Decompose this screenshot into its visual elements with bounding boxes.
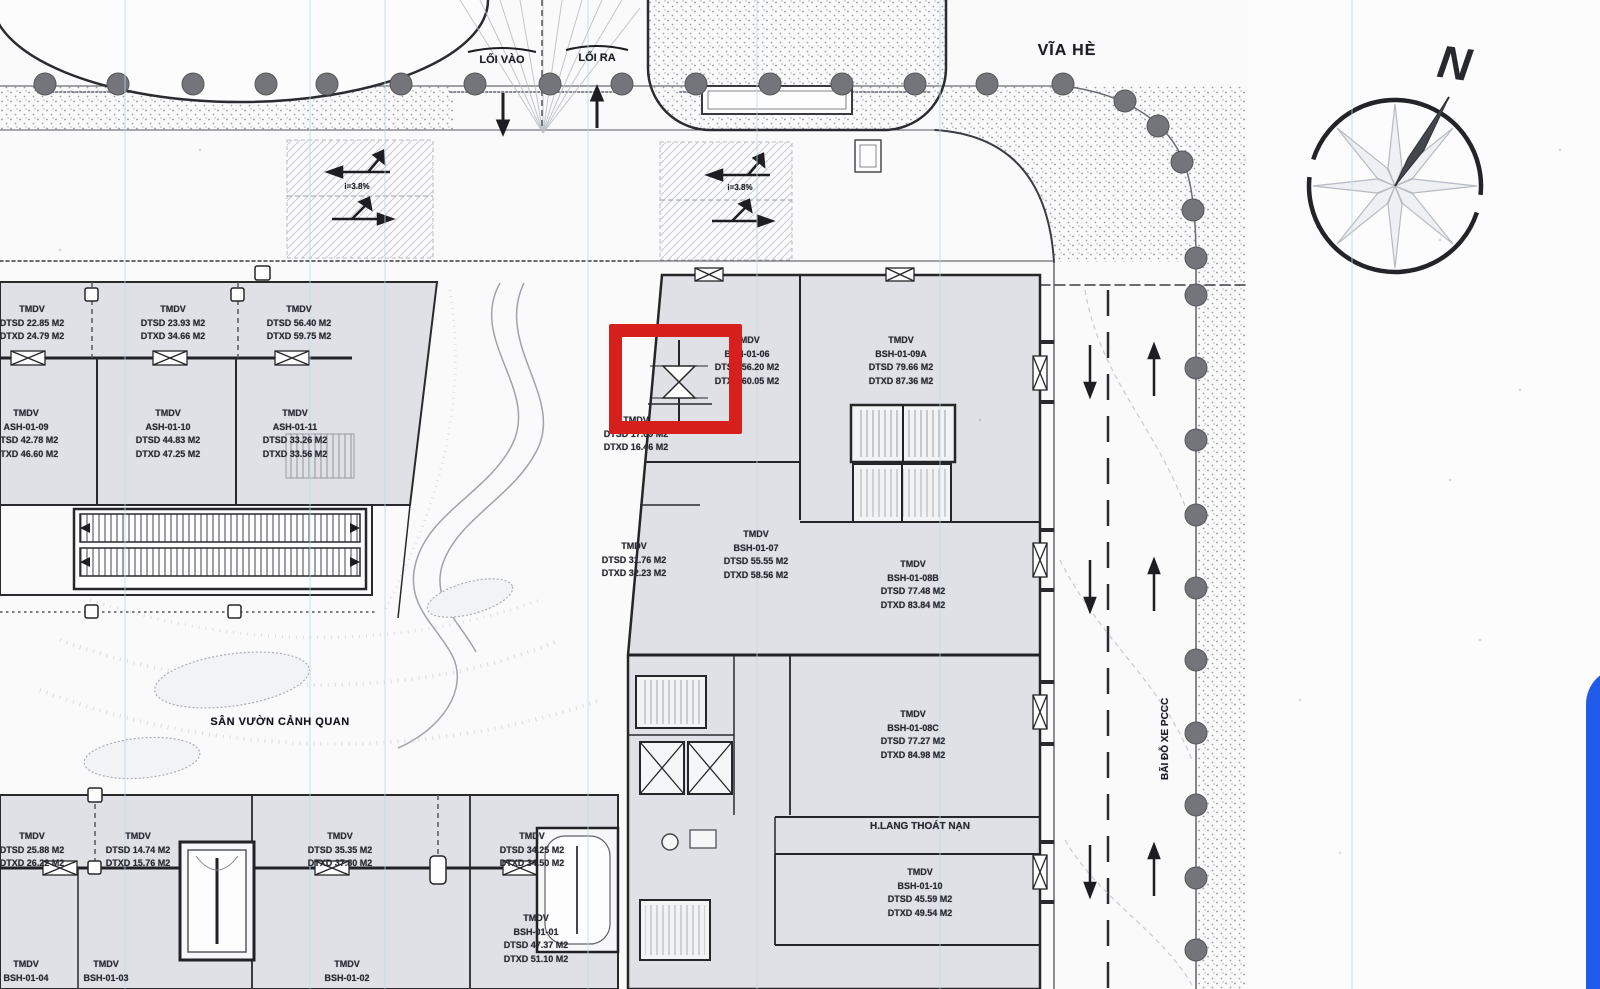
site-plan-canvas: VĨA HÈ LỐI VÀO LỐI RA BÃI ĐỖ XE PCCC SÂN… — [0, 0, 1600, 989]
blue-floating-element[interactable] — [1586, 668, 1600, 989]
highlight-annotation-box — [609, 324, 742, 434]
plan-linework — [0, 0, 1600, 989]
guard-box — [855, 140, 881, 172]
left-building-block — [0, 266, 437, 618]
ramp-center — [660, 142, 792, 260]
ramp-left — [287, 140, 433, 258]
